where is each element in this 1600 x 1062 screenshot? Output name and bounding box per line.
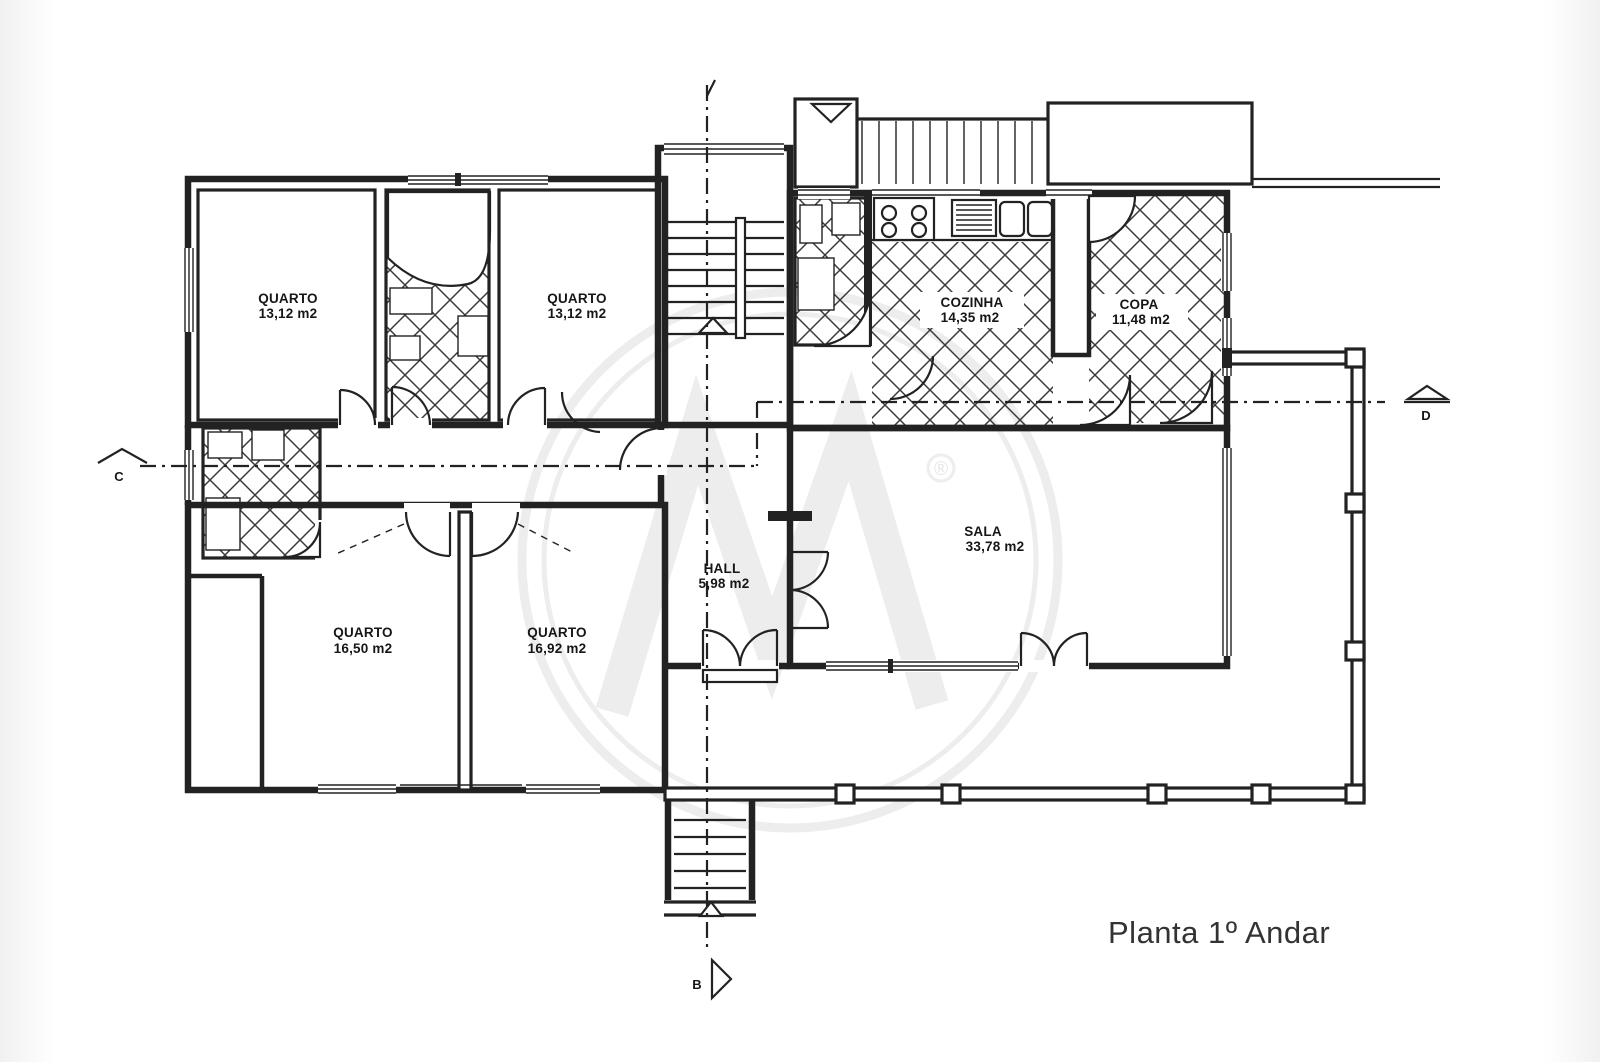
room-label-quarto-3-area: 16,50 m2 — [334, 641, 393, 656]
room-label-copa-area: 11,48 m2 — [1112, 312, 1170, 327]
sink-left — [1000, 202, 1024, 236]
kitchen-fixtures — [872, 198, 1053, 240]
room-label-quarto-2-name: QUARTO — [547, 291, 606, 306]
plan-title: Planta 1º Andar — [1108, 915, 1330, 950]
section-marker-d-label: D — [1421, 408, 1430, 423]
section-marker-c-label: C — [114, 469, 124, 484]
sink-right — [1028, 202, 1052, 236]
section-marker-c-arrow — [98, 449, 147, 463]
room-label-cozinha-name: COZINHA — [941, 295, 1004, 310]
entry-staircase-top — [812, 104, 1048, 184]
room-label-copa-name: COPA — [1120, 297, 1159, 312]
room-label-quarto-4-name: QUARTO — [527, 625, 586, 640]
section-marker-d-arrow — [1408, 386, 1447, 399]
watermark-registered-icon: ® — [934, 459, 948, 480]
room-label-quarto-4-area: 16,92 m2 — [528, 641, 587, 656]
room-label-quarto-1-name: QUARTO — [258, 291, 317, 306]
section-marker-b-label: B — [692, 977, 701, 992]
room-label-sala-name: SALA — [964, 524, 1002, 539]
section-marker-b-arrow — [712, 960, 731, 998]
room-label-quarto-2-area: 13,12 m2 — [548, 306, 607, 321]
room-label-quarto-1-area: 13,12 m2 — [259, 306, 318, 321]
floor-plan-drawing: ® — [0, 0, 1600, 1062]
room-label-hall-area: 5,98 m2 — [699, 576, 750, 591]
room-label-cozinha-area: 14,35 m2 — [941, 310, 1000, 325]
room-label-sala-area: 33,78 m2 — [966, 539, 1025, 554]
interior-staircase — [664, 218, 784, 338]
room-label-quarto-3-name: QUARTO — [333, 625, 392, 640]
floor-plan-page: ® — [0, 0, 1600, 1062]
room-label-hall-name: HALL — [704, 561, 741, 576]
